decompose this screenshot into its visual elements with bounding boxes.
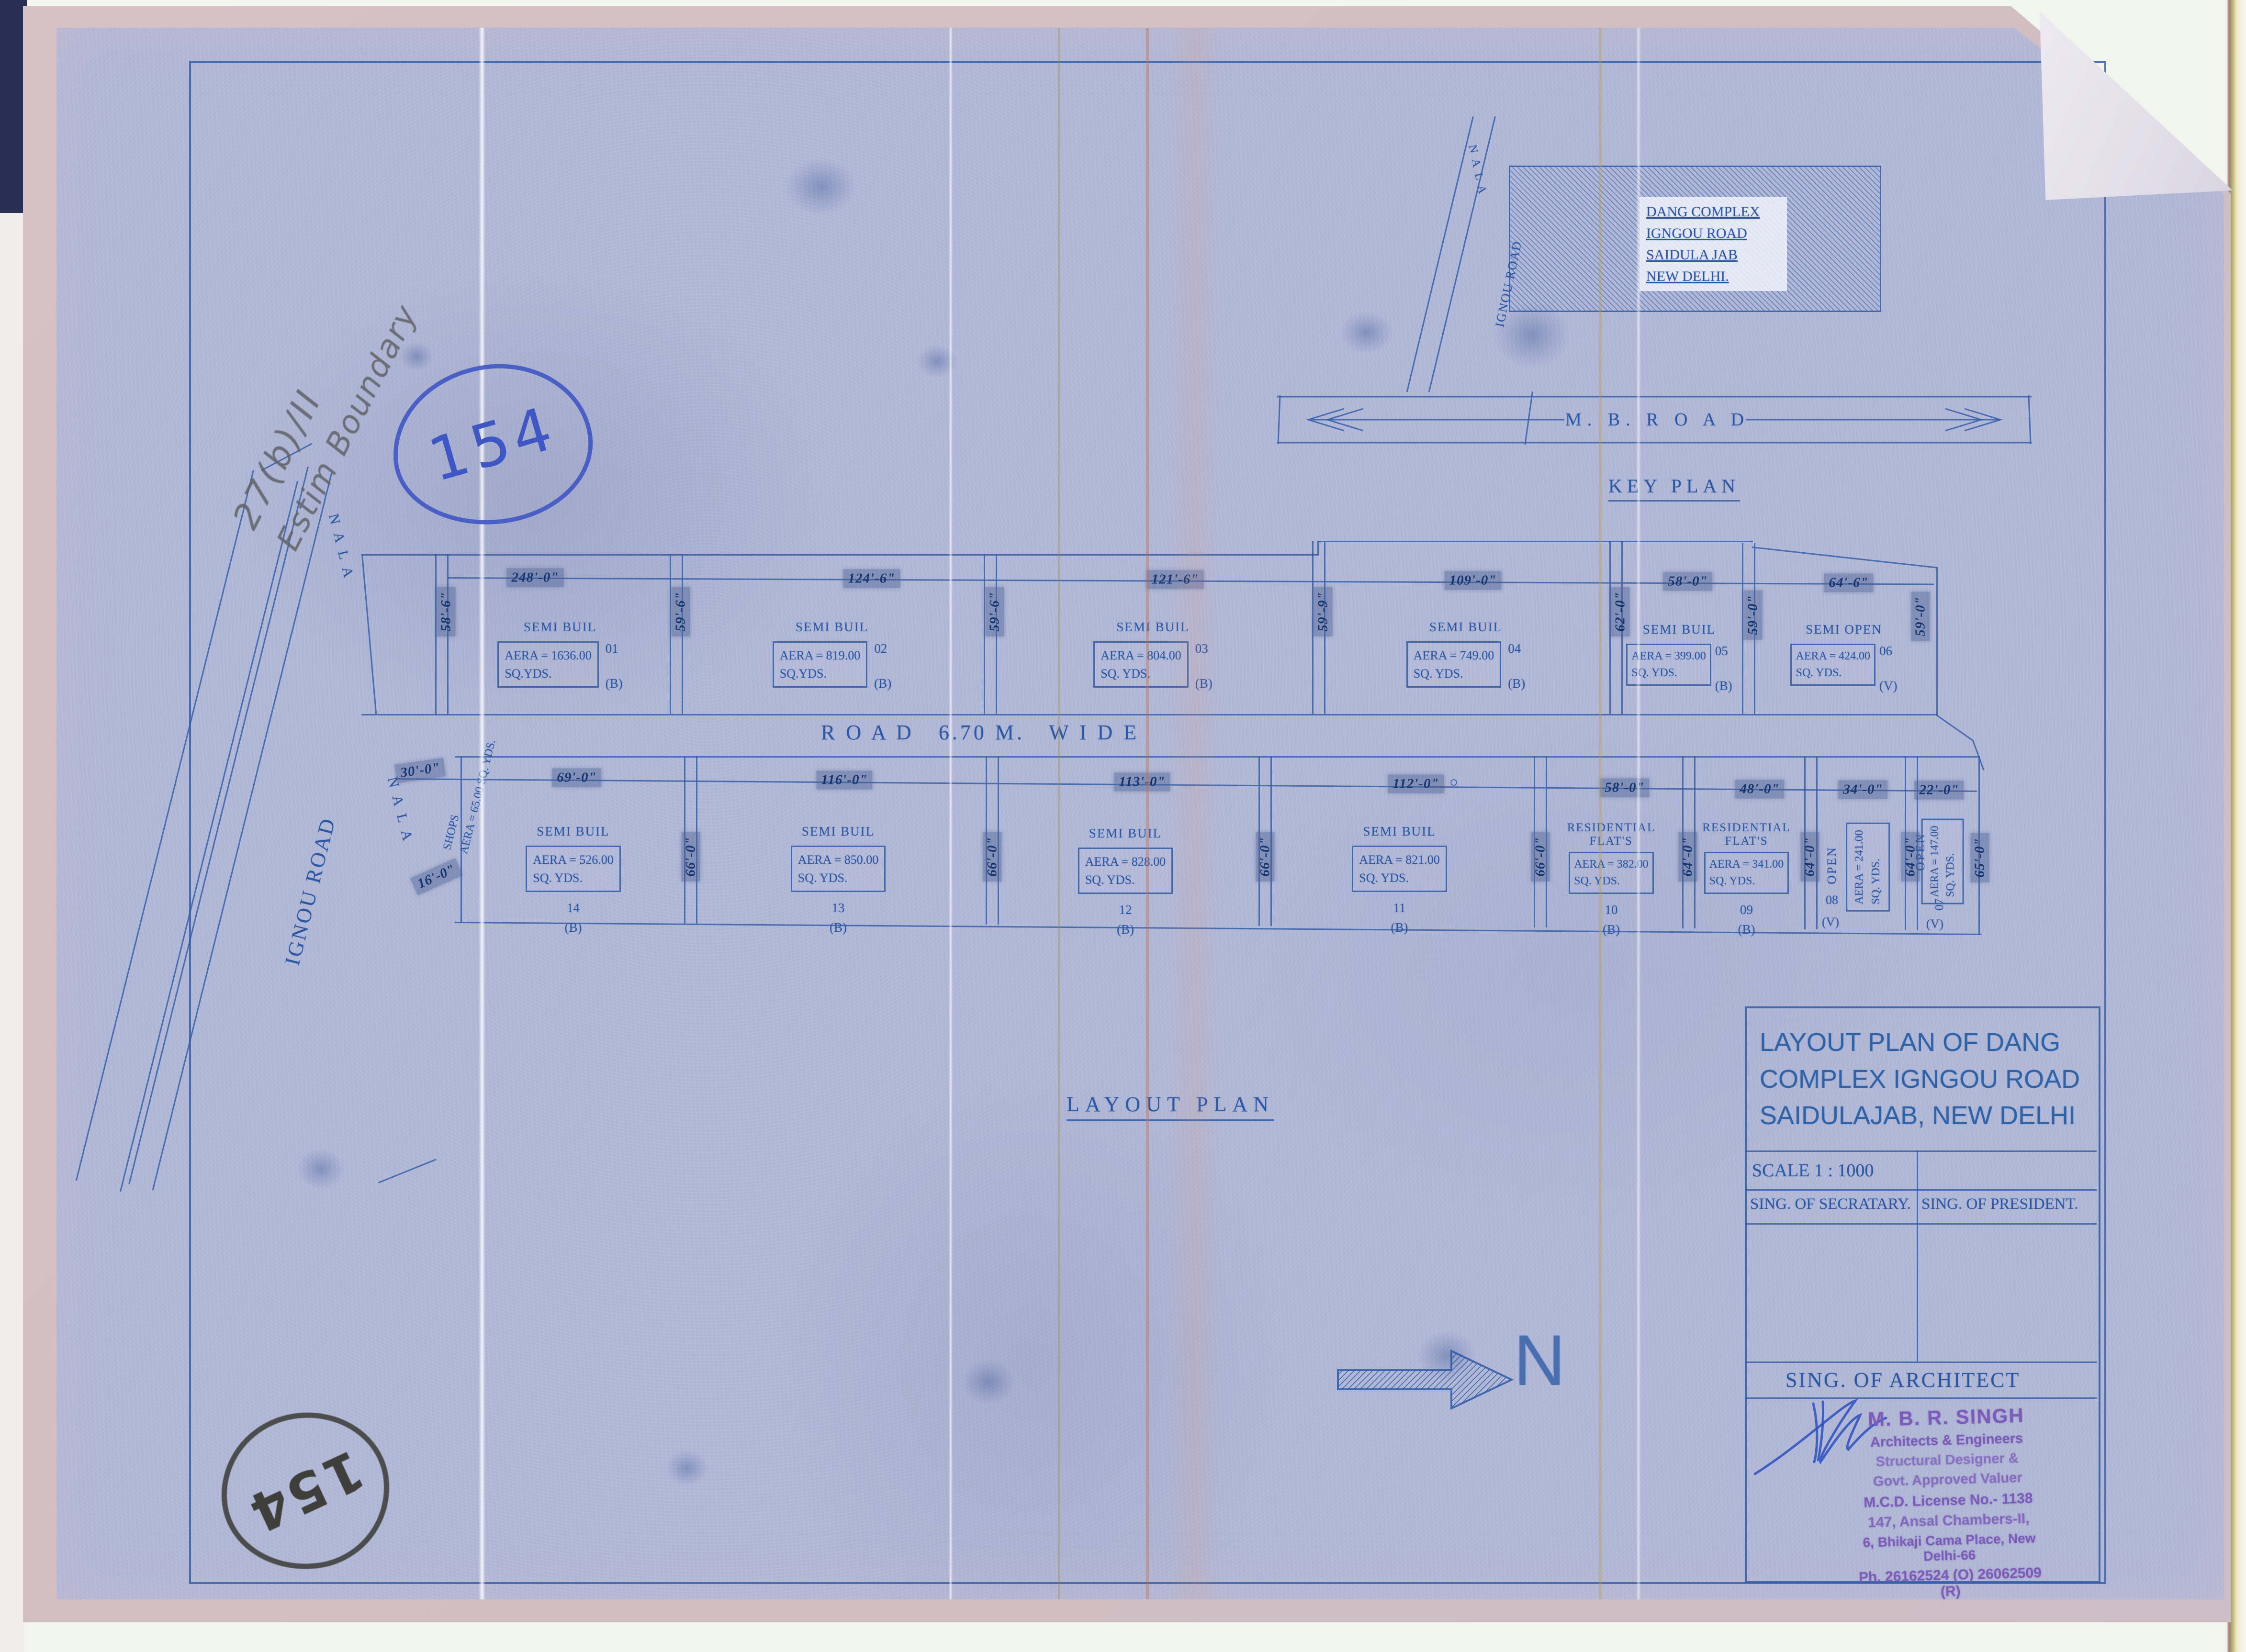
plot-type: RESIDENTIAL FLAT'S (1559, 821, 1664, 848)
dim-width-plot-11: 112'-0" (1388, 775, 1444, 793)
photo-left-margin (0, 213, 24, 1652)
dim-depth-plot-13: 66'-0" (983, 832, 1002, 881)
blueprint-scan: DANG COMPLEX IGNGOU ROAD SAIDULA JAB NEW… (0, 0, 2246, 1652)
dim-depth-plot-12: 66'-0" (1256, 832, 1275, 881)
sheet-number: 154 (421, 393, 564, 495)
area-box: AERA = 241.00SQ. YDS. (1846, 823, 1890, 912)
plot-number: 07 (1933, 899, 1946, 911)
fold-streak (949, 28, 953, 1599)
bottomrow-topline (455, 756, 1979, 758)
ink-stain (962, 1359, 1015, 1405)
area-box: AERA = 147.00SQ. YDS. (1921, 818, 1964, 904)
plot-type: SEMI BUIL (1265, 824, 1534, 839)
plot-number: 01 (606, 641, 623, 656)
plot-class: (B) (1689, 922, 1804, 937)
plot-type: SEMI BUIL (445, 620, 675, 635)
area-box: AERA = 828.00SQ. YDS. (1078, 848, 1173, 894)
plot-type: SEMI BUIL (462, 824, 685, 839)
plot-12: SEMI BUIL AERA = 828.00SQ. YDS. 12 (B) (992, 826, 1258, 937)
ignou-road-label: IGNOU ROAD (280, 815, 340, 968)
title-block-divider (1917, 1150, 1918, 1362)
dim-width-plot-08: 34'-0" (1838, 781, 1887, 799)
plot-number: 04 (1508, 641, 1525, 656)
circled-number-bottom: 154 (211, 1402, 400, 1580)
dim-width-plot-12: 113'-0" (1114, 773, 1170, 792)
plot-number: 12 (992, 903, 1258, 917)
area-box: AERA = 341.00SQ. YDS. (1704, 852, 1789, 894)
plot-type: SEMI OPEN (1753, 622, 1935, 637)
area-box: AERA = 1636.00SQ.YDS. (497, 641, 599, 688)
dim-depth-plot-01: 59'-6" (672, 587, 690, 636)
plot-class: (V) (1926, 917, 1943, 931)
title-block-line (1745, 1189, 2097, 1191)
band-break-mark (378, 1159, 437, 1183)
plot-class: (B) (1715, 679, 1732, 693)
plot-class: (V) (1822, 915, 1839, 929)
site-label-line: DANG COMPLEX (1646, 201, 1780, 223)
crease-line (1146, 28, 1149, 1599)
plot-09: RESIDENTIAL FLAT'S AERA = 341.00SQ. YDS.… (1689, 821, 1804, 937)
ink-stain (297, 1149, 345, 1189)
area-box: AERA = 526.00SQ. YDS. (526, 846, 621, 892)
sign-architect-label: SING. OF ARCHITECT (1786, 1368, 2020, 1392)
plot-class: (B) (1540, 922, 1682, 937)
plot-class: (B) (992, 922, 1258, 937)
title-block-line (1745, 1362, 2097, 1363)
dim-width-plot-05: 58'-0" (1663, 572, 1712, 591)
ink-stain (785, 158, 857, 215)
dim-depth-plot-14: 66'-0" (682, 832, 700, 881)
dim-depth-plot-05: 59'-0" (1744, 590, 1763, 639)
dim-depth-plot-06: 59'-0" (1911, 592, 1930, 641)
area-box: AERA = 850.00SQ. YDS. (791, 846, 886, 892)
plot-number: 08 (1826, 893, 1838, 907)
warm-wash (1168, 28, 1221, 1599)
plot-type: OPEN (1825, 846, 1839, 884)
plot-class: (B) (691, 920, 986, 935)
photo-corner-shadow (0, 0, 27, 213)
north-label: N (1514, 1319, 1565, 1402)
title-block-line (1745, 1223, 2097, 1225)
plot-class: (B) (606, 676, 623, 691)
ink-stain (1340, 311, 1393, 354)
plot-13: SEMI BUIL AERA = 850.00SQ. YDS. 13 (B) (691, 824, 986, 935)
plot-number: 06 (1879, 644, 1897, 659)
plot-number: 13 (691, 901, 986, 915)
dim-width-plot-13: 116'-0" (816, 771, 872, 790)
plot-type: SEMI BUIL (1615, 622, 1744, 637)
area-box: AERA = 749.00SQ. YDS. (1406, 641, 1502, 688)
dim-depth-shops: 16'-0" (410, 858, 463, 895)
dim-width-plot-01: 248'-0" (507, 569, 564, 587)
area-box: AERA = 819.00SQ.YDS. (773, 641, 868, 688)
plot-number: 02 (874, 641, 891, 656)
plot-02: SEMI BUIL AERA = 819.00SQ.YDS. 02(B) (680, 620, 984, 691)
plot-number: 03 (1195, 641, 1213, 656)
plot-10: RESIDENTIAL FLAT'S AERA = 382.00SQ. YDS.… (1540, 821, 1682, 937)
plot-03: SEMI BUIL AERA = 804.00SQ. YDS. 03(B) (994, 620, 1312, 691)
plot-number: 14 (462, 901, 685, 915)
ink-stain (1417, 1330, 1477, 1381)
toprow-topline-slant (1752, 547, 1938, 569)
dim-depth-row-left: 58'-6" (437, 587, 456, 636)
site-label-line: IGNGOU ROAD (1646, 223, 1780, 244)
dim-depth-plot-02: 59'-6" (986, 587, 1004, 636)
dim-width-plot-04: 109'-0" (1445, 571, 1502, 590)
dim-depth-plot-09: 64'-0" (1801, 832, 1819, 881)
dim-width-plot-03: 121'-6" (1147, 570, 1204, 589)
title-block-line (1745, 1150, 2097, 1152)
site-label-line: NEW DELHI. (1646, 266, 1780, 287)
plot-type: SEMI BUIL (994, 620, 1312, 635)
nala-label-lower: N A L A (384, 775, 416, 845)
dim-width-plot-02: 124'-6" (843, 569, 900, 588)
plot-type: SEMI BUIL (680, 620, 984, 635)
dim-width-plot-07: 22'-0" (1914, 781, 1964, 800)
sheet-number-bottom: 154 (237, 1437, 373, 1544)
plot-class: (B) (1265, 920, 1534, 935)
dim-width-plot-06: 64'-6" (1824, 574, 1873, 592)
dim-width-plot-14: 69'-0" (552, 769, 601, 787)
plot-class: (B) (874, 676, 891, 691)
site-label-line: SAIDULA JAB (1646, 244, 1780, 266)
dim-depth-plot-03: 59'-9" (1314, 587, 1333, 636)
circle-mark: ○ (1449, 774, 1458, 791)
plot-type: SEMI BUIL (992, 826, 1258, 841)
crease-line (1058, 28, 1060, 1599)
plot-type: RESIDENTIAL FLAT'S (1696, 821, 1797, 848)
ignou-road-band (76, 470, 298, 1192)
toprow-topline-step (1317, 541, 1753, 542)
area-box: AERA = 424.00SQ. YDS. (1790, 644, 1875, 686)
plot-class: (B) (1195, 676, 1213, 691)
architect-stamp: M. B. R. SINGH Architects & Engineers St… (1850, 1404, 2046, 1602)
plot-number: 11 (1265, 901, 1534, 915)
title-block-title: LAYOUT PLAN OF DANG COMPLEX IGNGOU ROAD … (1760, 1024, 2090, 1134)
dim-depth-plot-10: 64'-0" (1679, 832, 1697, 881)
sign-secretary-label: SING. OF SECRATARY. (1750, 1195, 1911, 1213)
keyplan-heading: KEY PLAN (1608, 475, 1740, 502)
plot-05: SEMI BUIL AERA = 399.00SQ. YDS. 05(B) (1615, 622, 1744, 693)
plot-class: (V) (1879, 679, 1897, 693)
area-box: AERA = 399.00SQ. YDS. (1626, 644, 1711, 686)
area-box: AERA = 821.00SQ. YDS. (1352, 846, 1447, 892)
ink-stain (917, 345, 957, 378)
nala-label-upper: N A L A (325, 512, 357, 582)
sign-president-label: SING. OF PRESIDENT. (1921, 1195, 2078, 1213)
pencil-note: 27(b)/II Estim Boundary (225, 276, 425, 556)
dim-depth-plot-11: 66'-0" (1531, 832, 1550, 881)
plot-14: SEMI BUIL AERA = 526.00SQ. YDS. 14 (B) (462, 824, 685, 935)
road-label: R O A D 6.70 M. W I D E (821, 720, 1139, 745)
layout-plan-heading: LAYOUT PLAN (1067, 1092, 1274, 1121)
plot-04: SEMI BUIL AERA = 749.00SQ. YDS. 04(B) (1322, 620, 1609, 691)
toprow-rightedge (1936, 568, 1938, 715)
dim-depth-row-right: 65'-0" (1971, 833, 1989, 882)
plot-11: SEMI BUIL AERA = 821.00SQ. YDS. 11 (B) (1265, 824, 1534, 935)
keyplan-site-label: DANG COMPLEX IGNGOU ROAD SAIDULA JAB NEW… (1640, 197, 1787, 291)
plot-class: (B) (462, 920, 685, 935)
plot-01: SEMI BUIL AERA = 1636.00SQ.YDS. 01(B) (445, 620, 675, 691)
ink-stain (1494, 301, 1570, 368)
scale-label: SCALE 1 : 1000 (1752, 1160, 1874, 1181)
plot-number: 09 (1689, 903, 1804, 917)
edge-zigzag (1935, 714, 1974, 741)
plot-06: SEMI OPEN AERA = 424.00SQ. YDS. 06(V) (1753, 622, 1935, 693)
dim-width-plot-09: 48'-0" (1735, 780, 1784, 799)
folded-corner (2032, 8, 2233, 200)
plot-number: 10 (1540, 903, 1682, 917)
plot-class: (B) (1508, 676, 1525, 691)
circled-number-top: 154 (385, 355, 601, 534)
toprow-leftedge (361, 554, 377, 714)
area-box: AERA = 804.00SQ. YDS. (1093, 641, 1189, 688)
toprow-topline (361, 554, 1319, 556)
dim-depth-plot-08: 64'-0" (1901, 832, 1920, 881)
dim-width-plot-10: 58'-0" (1600, 779, 1649, 797)
toprow-bottomline (361, 714, 1937, 715)
ink-stain (665, 1450, 708, 1486)
plot-type: SEMI BUIL (1322, 620, 1609, 635)
plot-number: 05 (1715, 644, 1732, 659)
plot-type: SEMI BUIL (691, 824, 986, 839)
keyplan-road-edge (1406, 116, 1474, 392)
photo-edge-stripes (2219, 0, 2246, 1652)
area-box: AERA = 382.00SQ. YDS. (1569, 852, 1654, 894)
mb-road-label: M. B. R O A D (1565, 409, 1750, 430)
dim-depth-plot-04: 62'-0" (1611, 587, 1630, 636)
